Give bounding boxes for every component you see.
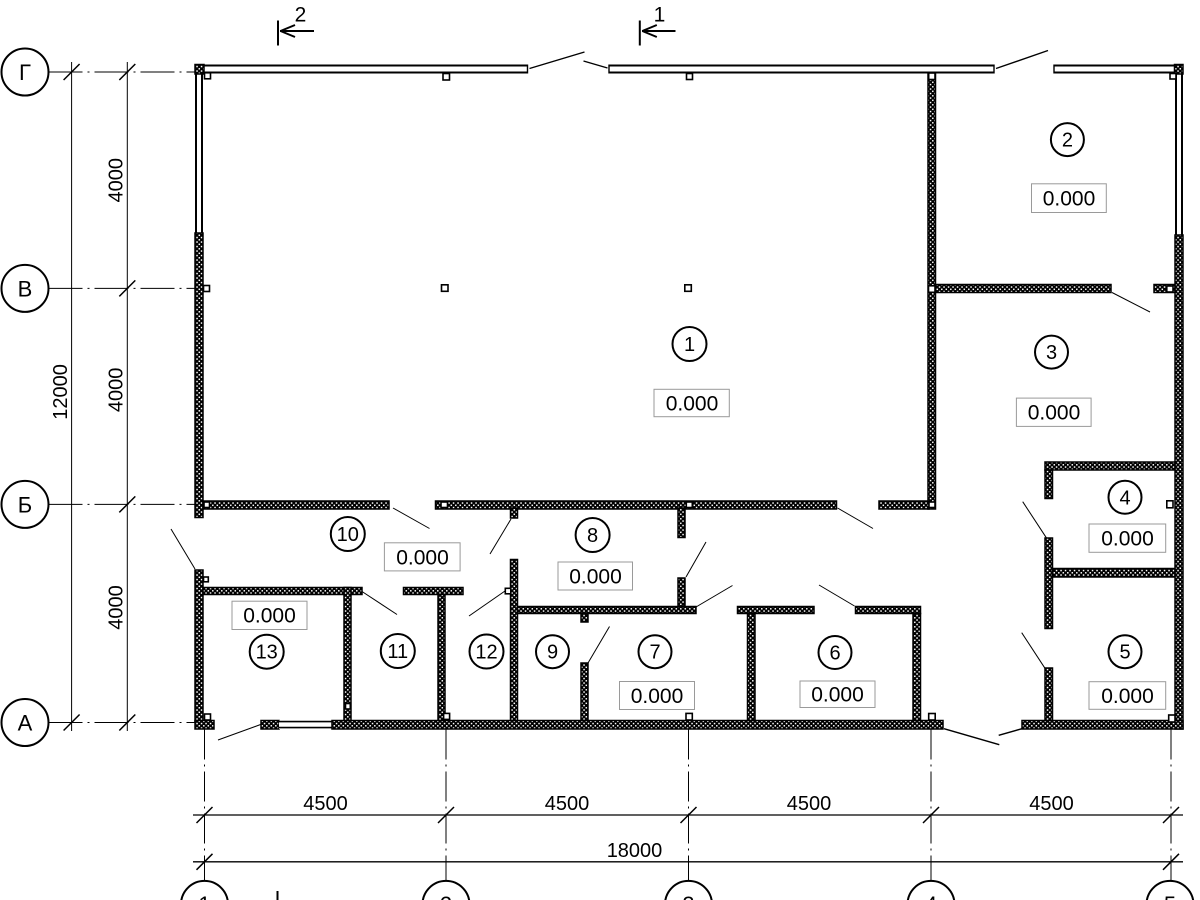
svg-text:4: 4	[1119, 487, 1130, 509]
svg-text:8: 8	[587, 525, 598, 547]
svg-text:0.000: 0.000	[243, 605, 296, 628]
svg-text:4000: 4000	[106, 585, 128, 630]
svg-text:12: 12	[475, 642, 497, 664]
svg-text:Б: Б	[18, 492, 32, 517]
svg-text:6: 6	[829, 643, 840, 665]
svg-text:1: 1	[684, 334, 695, 356]
svg-text:В: В	[18, 276, 33, 301]
svg-text:0.000: 0.000	[1043, 188, 1096, 211]
svg-text:3: 3	[682, 892, 694, 900]
svg-text:0.000: 0.000	[396, 546, 449, 569]
svg-text:11: 11	[387, 641, 408, 663]
svg-text:5: 5	[1164, 892, 1176, 900]
svg-text:4000: 4000	[106, 368, 128, 413]
svg-text:12000: 12000	[50, 364, 72, 420]
svg-text:10: 10	[337, 524, 359, 546]
svg-text:0.000: 0.000	[666, 392, 719, 415]
svg-text:9: 9	[547, 642, 558, 664]
svg-text:4500: 4500	[787, 793, 832, 815]
svg-text:2: 2	[1062, 130, 1073, 152]
svg-text:3: 3	[1046, 342, 1057, 364]
svg-text:5: 5	[1119, 642, 1130, 664]
svg-text:18000: 18000	[607, 840, 663, 862]
svg-text:4000: 4000	[106, 158, 128, 203]
svg-text:Г: Г	[19, 60, 31, 85]
svg-text:4500: 4500	[303, 793, 348, 815]
svg-text:0.000: 0.000	[569, 566, 622, 589]
svg-text:0.000: 0.000	[631, 685, 684, 708]
svg-text:0.000: 0.000	[811, 684, 864, 707]
svg-text:А: А	[18, 711, 33, 736]
svg-text:1: 1	[654, 4, 666, 27]
svg-text:0.000: 0.000	[1028, 402, 1081, 425]
svg-text:4500: 4500	[545, 793, 590, 815]
svg-text:0.000: 0.000	[1101, 685, 1154, 708]
svg-text:2: 2	[295, 4, 307, 27]
svg-text:0.000: 0.000	[1101, 528, 1154, 551]
svg-text:13: 13	[256, 642, 278, 664]
svg-text:4: 4	[925, 892, 937, 900]
svg-text:4500: 4500	[1029, 793, 1074, 815]
svg-text:1: 1	[198, 892, 210, 900]
svg-text:2: 2	[440, 892, 452, 900]
svg-text:7: 7	[649, 642, 660, 664]
